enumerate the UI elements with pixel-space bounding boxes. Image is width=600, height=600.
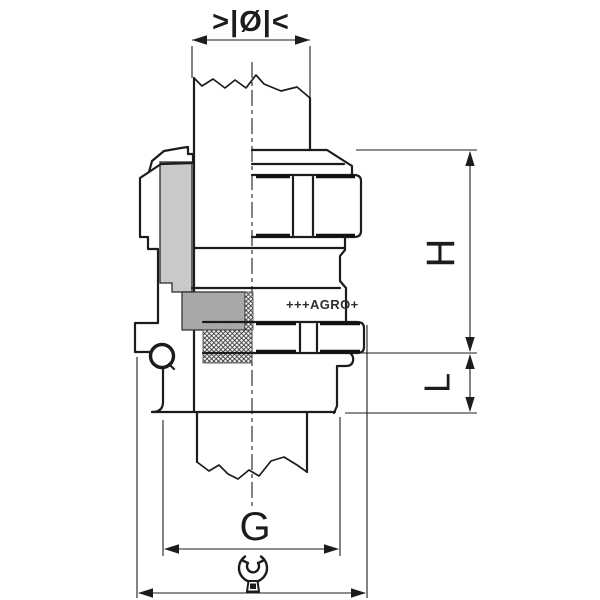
external-right-half: +++AGRO+ [192, 150, 364, 413]
sealing-insert [160, 162, 192, 292]
dimension-h: H [354, 150, 477, 353]
h-arrow-top [465, 151, 474, 166]
cap-body-wall-left [135, 172, 158, 352]
wrench-head [239, 557, 267, 582]
wrench-arrow-right [351, 588, 366, 597]
wrench-shank-detail [250, 584, 256, 590]
thread-hatch-lower [203, 330, 252, 363]
wrench-arrow-left [138, 588, 153, 597]
cable-diameter-symbol: >|Ø|< [212, 6, 290, 38]
l-label: L [417, 373, 458, 393]
section-left-half [135, 147, 335, 412]
thread-hatch-upper [245, 292, 253, 330]
h-arrow-bottom [465, 337, 474, 352]
cap-hex [252, 175, 361, 237]
body-wall-lower-left [152, 368, 163, 412]
open-end-wrench-icon [239, 557, 267, 592]
drawing-page: +++AGRO+ >|Ø|< H L G [0, 0, 600, 600]
barrel-right-profile [334, 353, 353, 413]
h-label: H [419, 239, 463, 268]
cap-dome [252, 150, 352, 174]
dimension-cable-diameter: >|Ø|< [192, 6, 310, 98]
diameter-arrow-left [192, 35, 207, 44]
diameter-extension-lines [192, 46, 310, 98]
l-arrow-top [465, 354, 474, 369]
g-label: G [239, 505, 270, 549]
brand-marking-text: +++AGRO+ [286, 297, 359, 312]
g-arrow-right [324, 544, 339, 553]
diameter-arrow-right [295, 35, 310, 44]
body-hex-facets [300, 324, 317, 351]
cable-gland-section-drawing: +++AGRO+ >|Ø|< H L G [0, 0, 600, 600]
g-arrow-left [164, 544, 179, 553]
dimension-l: L [345, 354, 477, 413]
l-arrow-bottom [465, 397, 474, 412]
seal-block [182, 292, 245, 330]
cap-hex-facets [293, 177, 313, 235]
